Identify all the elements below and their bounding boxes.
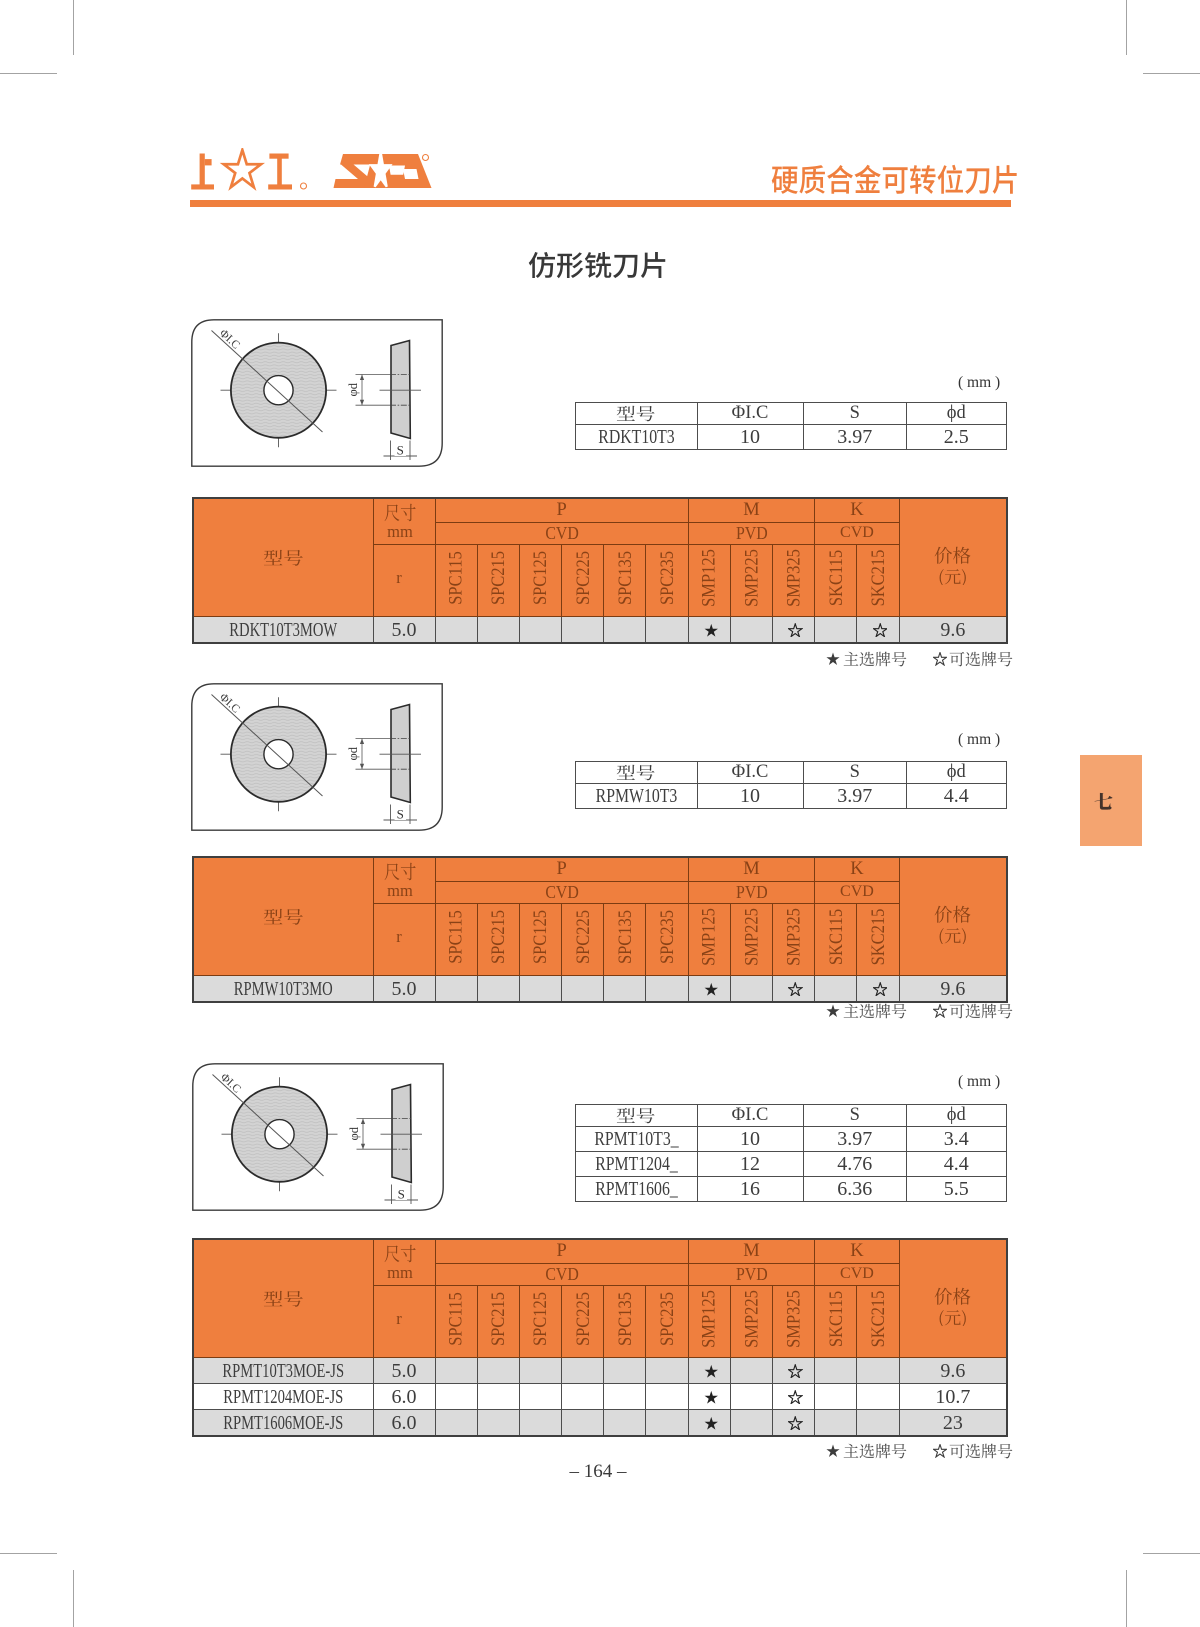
svg-text:S: S: [397, 806, 404, 821]
svg-text:ΦI.C: ΦI.C: [216, 327, 241, 351]
svg-text:ΦI.C: ΦI.C: [217, 691, 242, 715]
svg-text:φd: φd: [346, 382, 360, 396]
svg-text:ΦI.C: ΦI.C: [217, 1071, 242, 1095]
svg-text:S: S: [397, 1187, 404, 1202]
svg-text:φd: φd: [347, 1126, 361, 1140]
svg-text:φd: φd: [346, 746, 360, 760]
svg-text:S: S: [396, 442, 403, 457]
